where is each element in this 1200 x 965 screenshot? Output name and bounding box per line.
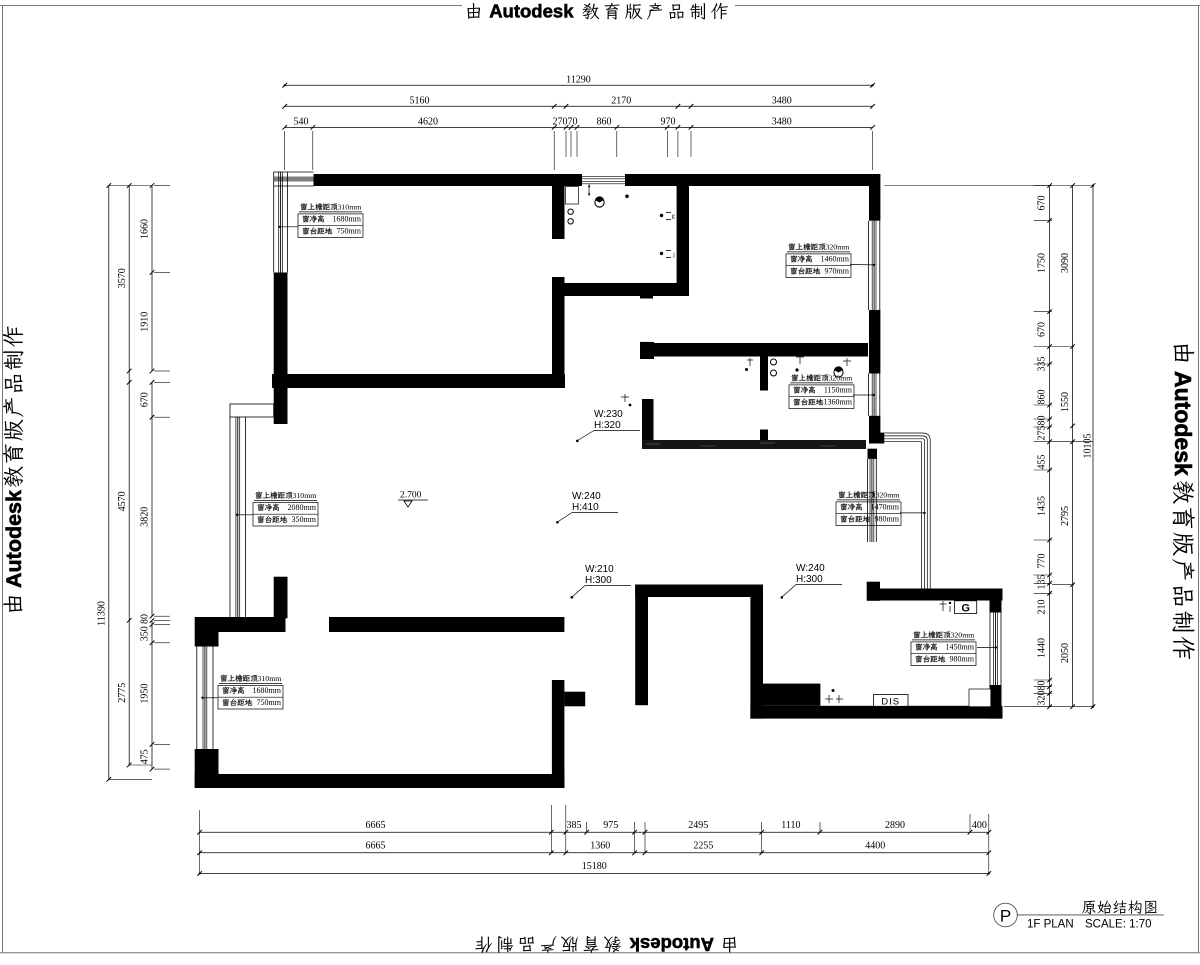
- svg-text:1360: 1360: [590, 840, 610, 851]
- svg-text:H:300: H:300: [585, 575, 612, 586]
- svg-text:670: 670: [140, 392, 151, 407]
- svg-text:320mm: 320mm: [826, 243, 850, 252]
- svg-text:475: 475: [140, 749, 151, 764]
- svg-text:670: 670: [1037, 322, 1048, 337]
- svg-text:2775: 2775: [117, 683, 128, 703]
- svg-text:3090: 3090: [1060, 253, 1071, 273]
- svg-text:2795: 2795: [1060, 506, 1071, 526]
- svg-text:1435: 1435: [1037, 496, 1048, 516]
- svg-text:860: 860: [597, 117, 612, 128]
- svg-text:750mm: 750mm: [337, 227, 362, 236]
- svg-text:540: 540: [294, 117, 309, 128]
- svg-text:210: 210: [1037, 600, 1048, 615]
- svg-text:770: 770: [1037, 554, 1048, 569]
- svg-text:975: 975: [603, 820, 618, 831]
- svg-text:3480: 3480: [772, 96, 792, 107]
- svg-text:2080mm: 2080mm: [288, 503, 317, 512]
- svg-text:385: 385: [567, 820, 582, 831]
- svg-text:310mm: 310mm: [293, 491, 317, 500]
- svg-text:27580: 27580: [1037, 416, 1048, 441]
- svg-text:W:230: W:230: [594, 409, 623, 420]
- svg-text:350mm: 350mm: [292, 515, 317, 524]
- svg-text:W:240: W:240: [572, 491, 601, 502]
- svg-text:1F PLAN: 1F PLAN: [1027, 919, 1074, 931]
- svg-text:W:210: W:210: [585, 564, 614, 575]
- svg-text:2.700: 2.700: [400, 491, 422, 501]
- svg-text:980mm: 980mm: [950, 655, 975, 664]
- svg-text:5160: 5160: [410, 96, 430, 107]
- svg-text:27070: 27070: [553, 117, 578, 128]
- svg-text:1750: 1750: [1037, 253, 1048, 273]
- svg-text:P: P: [1000, 907, 1011, 926]
- svg-text:15180: 15180: [582, 861, 607, 872]
- svg-text:SCALE: 1:70: SCALE: 1:70: [1085, 919, 1151, 931]
- svg-text:4400: 4400: [865, 840, 885, 851]
- svg-text:80: 80: [140, 614, 151, 624]
- svg-text:750mm: 750mm: [257, 698, 282, 707]
- svg-text:Autodesk: Autodesk: [1170, 371, 1196, 476]
- svg-text:3820: 3820: [140, 507, 151, 527]
- svg-text:32080: 32080: [1037, 681, 1048, 706]
- svg-text:1680mm: 1680mm: [253, 686, 282, 695]
- svg-text:1110: 1110: [781, 820, 800, 831]
- svg-text:310mm: 310mm: [338, 203, 362, 212]
- svg-text:980mm: 980mm: [875, 515, 900, 524]
- svg-text:Autodesk: Autodesk: [629, 934, 714, 955]
- svg-text:320mm: 320mm: [951, 631, 975, 640]
- svg-text:Autodesk: Autodesk: [2, 490, 26, 588]
- svg-text:670: 670: [1037, 196, 1048, 211]
- svg-text:H:300: H:300: [796, 574, 823, 585]
- svg-text:2890: 2890: [885, 820, 905, 831]
- svg-text:6665: 6665: [366, 820, 386, 831]
- svg-text:W:240: W:240: [796, 563, 825, 574]
- svg-text:6665: 6665: [366, 840, 386, 851]
- svg-text:350: 350: [140, 626, 151, 641]
- svg-text:1550: 1550: [1060, 392, 1071, 412]
- svg-text:310mm: 310mm: [258, 674, 282, 683]
- svg-text:10105: 10105: [1083, 434, 1094, 459]
- svg-text:1450mm: 1450mm: [946, 643, 975, 652]
- svg-text:2050: 2050: [1060, 643, 1071, 663]
- svg-text:Autodesk: Autodesk: [489, 1, 574, 22]
- svg-text:970: 970: [661, 117, 676, 128]
- svg-text:320mm: 320mm: [829, 374, 853, 383]
- svg-text:G: G: [961, 602, 970, 614]
- svg-text:1950: 1950: [140, 684, 151, 704]
- svg-text:1360mm: 1360mm: [824, 398, 853, 407]
- svg-text:1150mm: 1150mm: [824, 386, 853, 395]
- svg-text:1660: 1660: [140, 219, 151, 239]
- svg-text:1470mm: 1470mm: [871, 503, 900, 512]
- svg-text:400: 400: [972, 820, 987, 831]
- svg-text:135: 135: [1037, 575, 1048, 590]
- svg-text:2495: 2495: [688, 820, 708, 831]
- svg-text:H:410: H:410: [572, 502, 599, 513]
- svg-text:2255: 2255: [693, 840, 713, 851]
- svg-text:DIS: DIS: [881, 696, 900, 707]
- svg-text:455: 455: [1037, 455, 1048, 470]
- svg-text:11290: 11290: [566, 75, 591, 86]
- svg-text:3570: 3570: [117, 268, 128, 288]
- svg-text:335: 335: [1037, 357, 1048, 372]
- svg-text:970mm: 970mm: [825, 267, 850, 276]
- svg-text:1680mm: 1680mm: [333, 215, 362, 224]
- svg-text:1440: 1440: [1037, 638, 1048, 658]
- svg-text:1460mm: 1460mm: [821, 255, 850, 264]
- svg-text:2170: 2170: [611, 96, 631, 107]
- svg-text:3480: 3480: [772, 117, 792, 128]
- svg-text:4570: 4570: [117, 491, 128, 511]
- svg-text:H:320: H:320: [594, 420, 621, 431]
- svg-text:11390: 11390: [97, 601, 108, 626]
- svg-text:4620: 4620: [418, 117, 438, 128]
- svg-text:1910: 1910: [140, 312, 151, 332]
- svg-text:860: 860: [1037, 390, 1048, 405]
- svg-text:320mm: 320mm: [876, 491, 900, 500]
